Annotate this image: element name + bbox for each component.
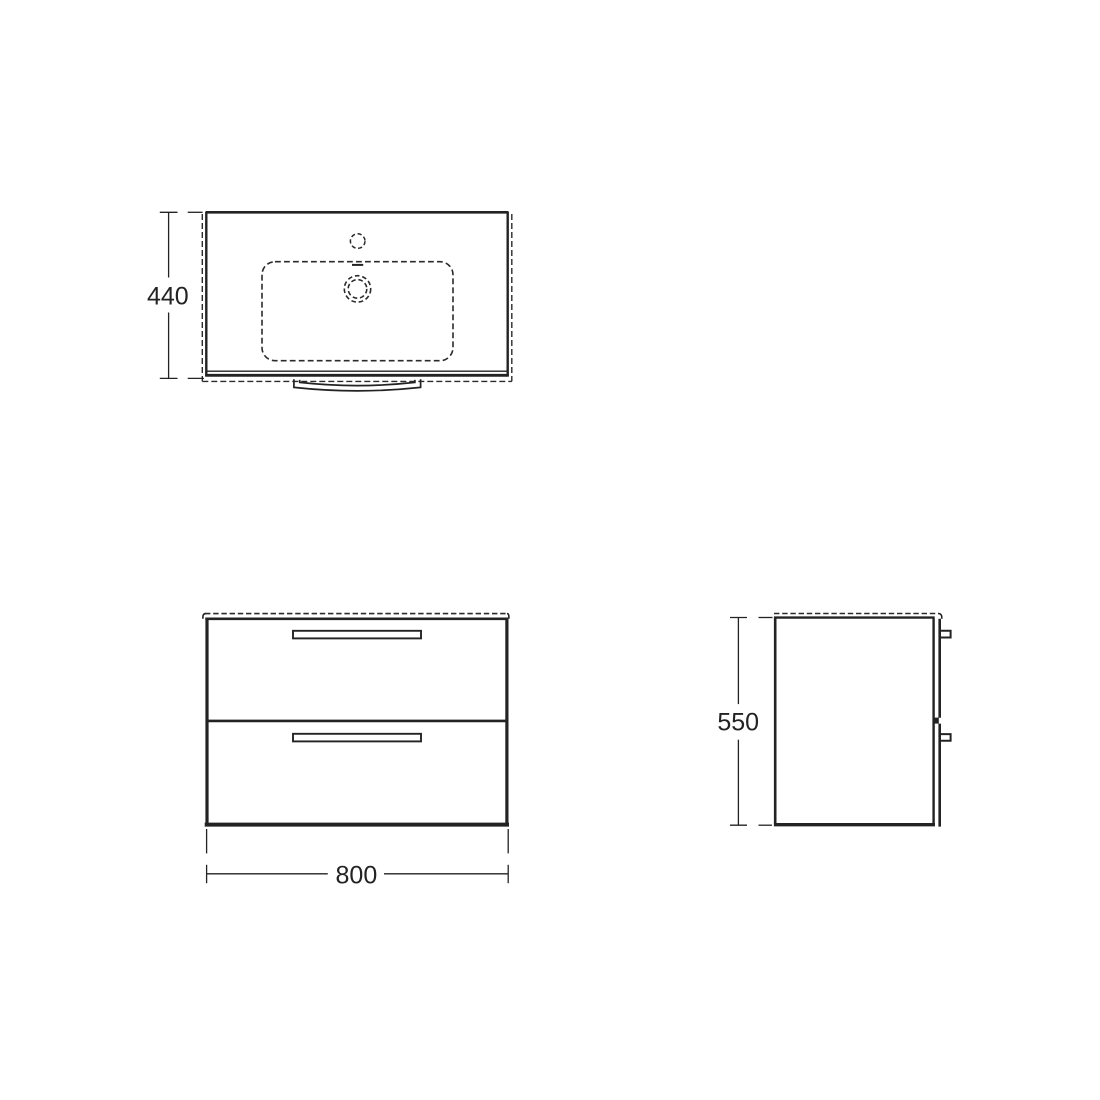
svg-text:440: 440 <box>147 283 189 311</box>
svg-text:550: 550 <box>717 709 759 737</box>
svg-text:800: 800 <box>336 862 378 890</box>
